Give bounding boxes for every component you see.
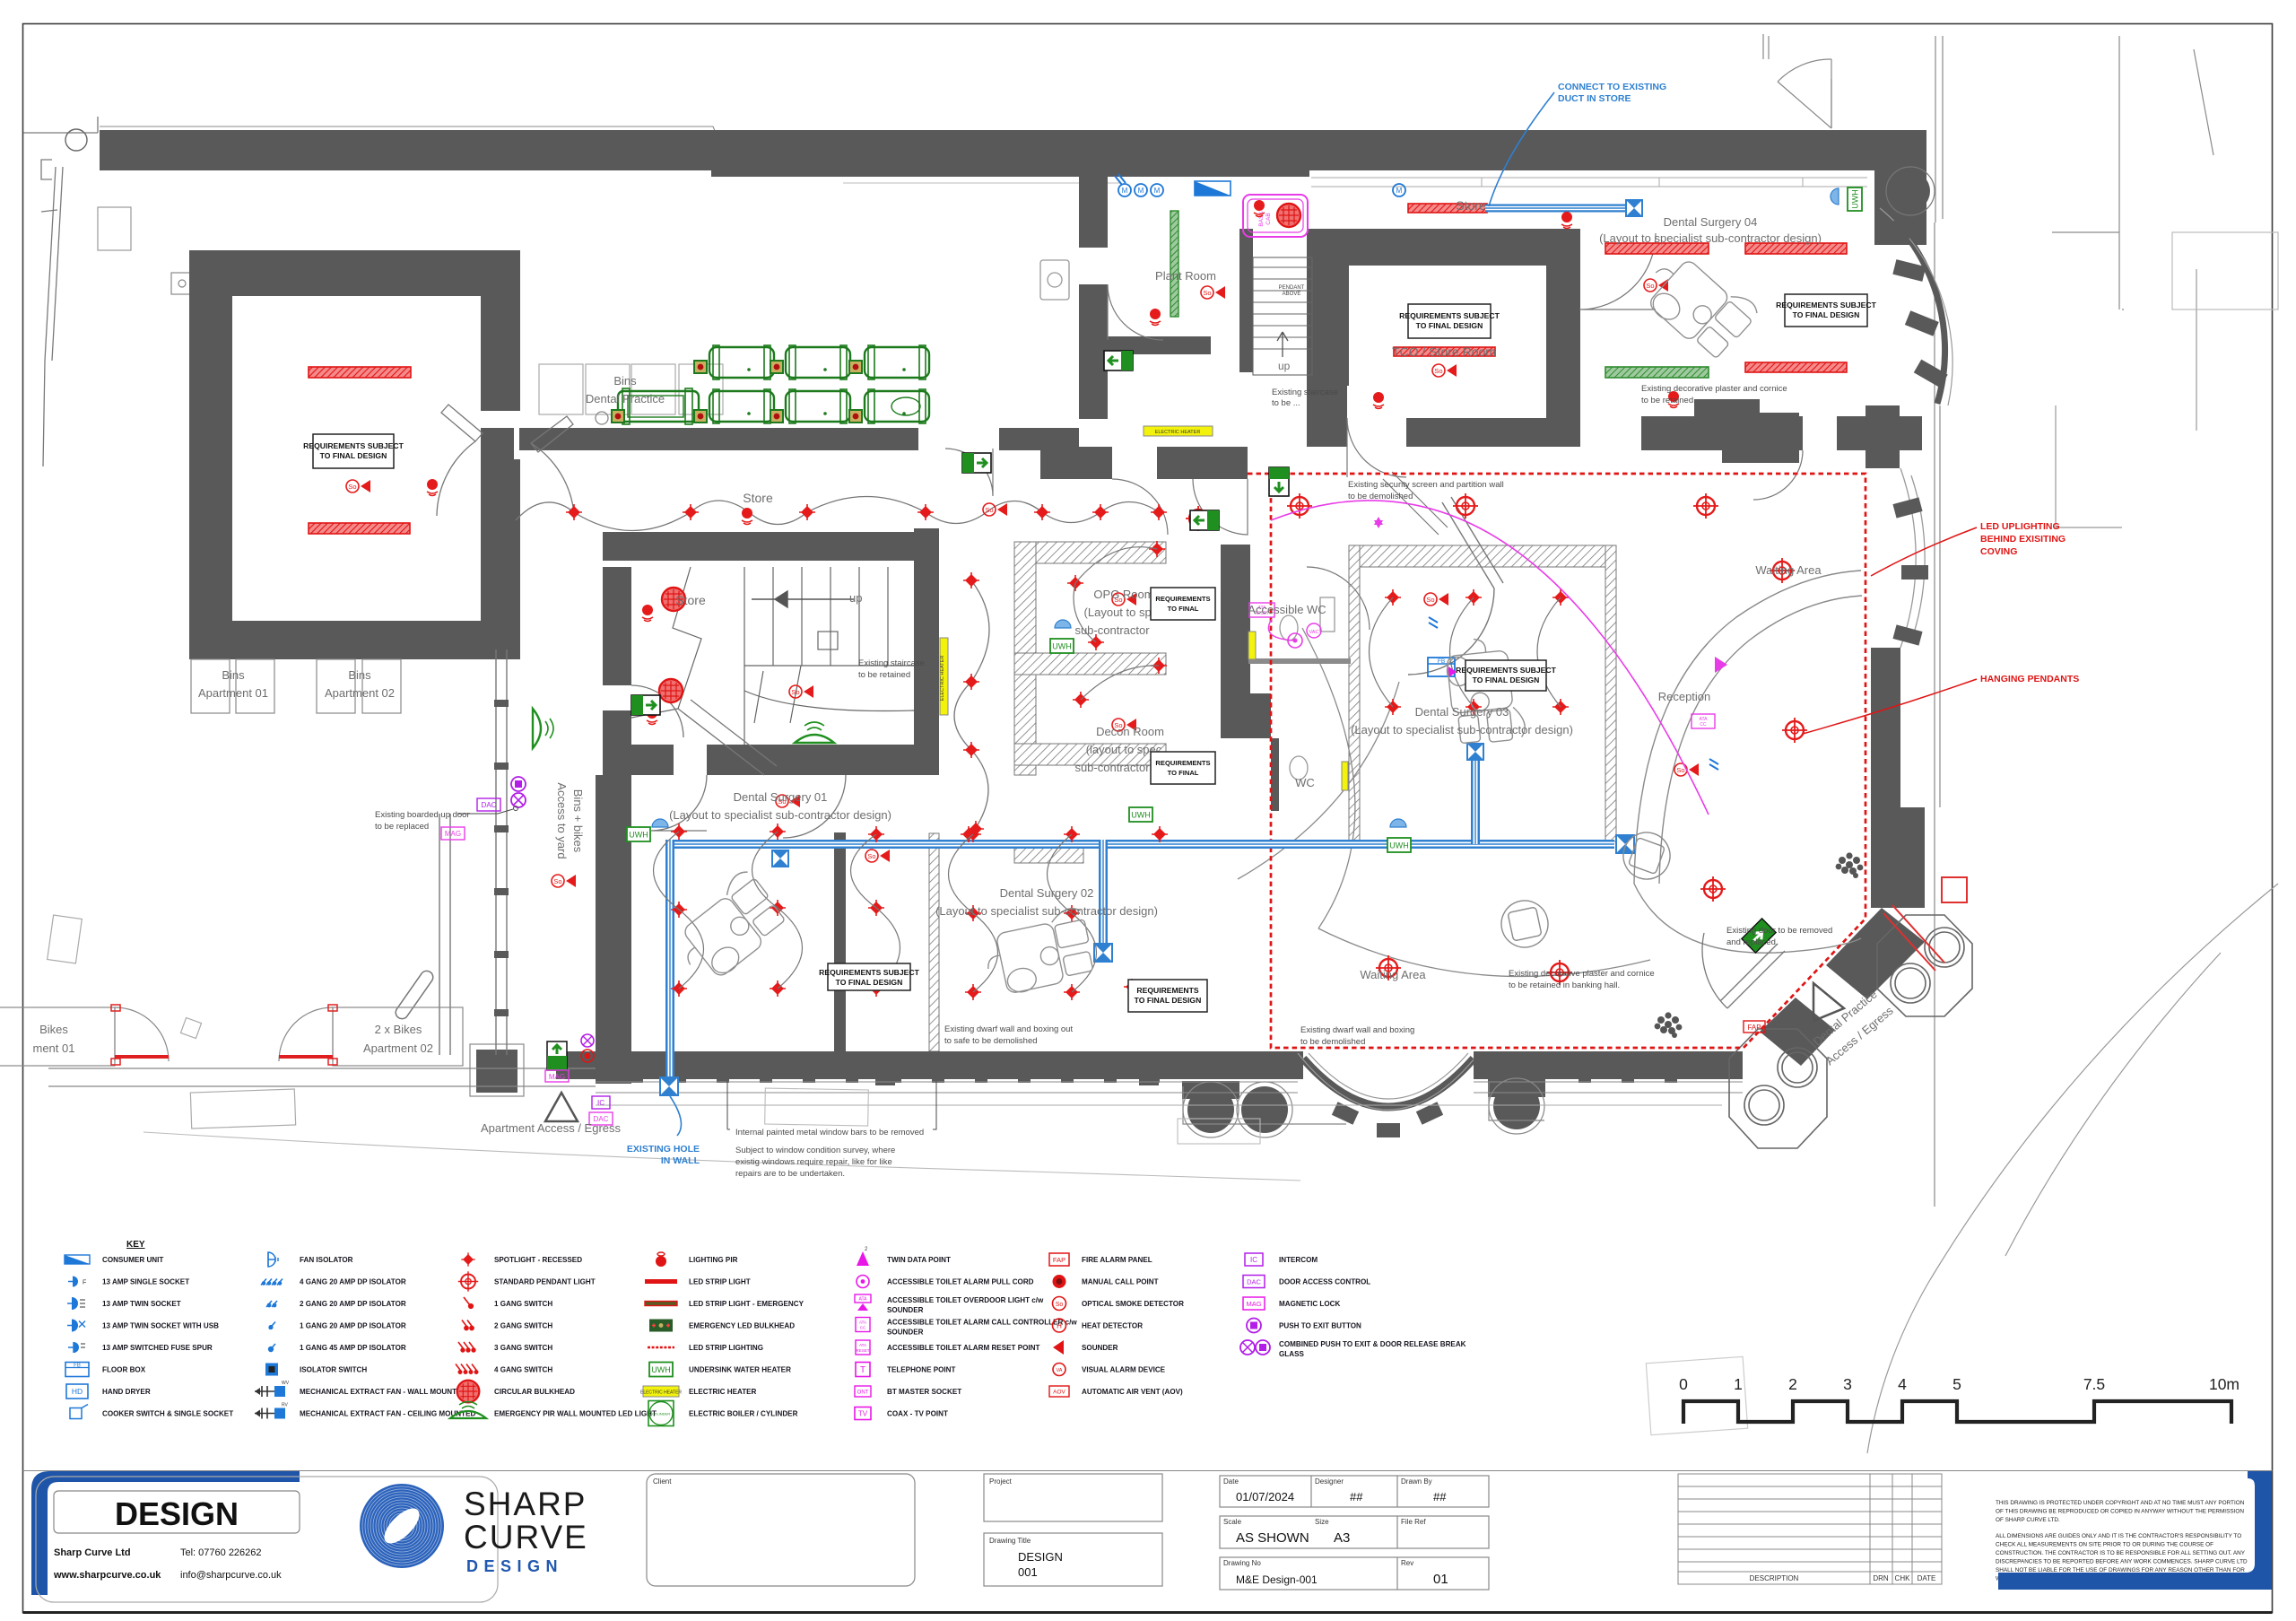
svg-text:(Layout to specialist sub-cont: (Layout to specialist sub-contractor des… bbox=[1351, 723, 1573, 736]
svg-text:Rev: Rev bbox=[1401, 1559, 1413, 1567]
svg-text:Existing dwarf wall and boxing: Existing dwarf wall and boxing out bbox=[944, 1024, 1073, 1034]
svg-text:Bins: Bins bbox=[222, 668, 245, 682]
svg-text:CC: CC bbox=[860, 1326, 866, 1330]
svg-text:Apartment 01: Apartment 01 bbox=[198, 686, 268, 700]
svg-text:RV: RV bbox=[282, 1403, 289, 1408]
svg-text:MANUAL CALL POINT: MANUAL CALL POINT bbox=[1082, 1278, 1159, 1286]
svg-text:Existing staircase: Existing staircase bbox=[858, 658, 925, 668]
svg-text:FIRE ALARM PANEL: FIRE ALARM PANEL bbox=[1082, 1256, 1152, 1264]
svg-text:TO FINAL DESIGN: TO FINAL DESIGN bbox=[1793, 310, 1860, 319]
svg-text:RESET: RESET bbox=[856, 1348, 869, 1353]
svg-text:OPTICAL SMOKE DETECTOR: OPTICAL SMOKE DETECTOR bbox=[1082, 1300, 1184, 1308]
svg-text:13 AMP SINGLE SOCKET: 13 AMP SINGLE SOCKET bbox=[102, 1278, 189, 1286]
svg-text:Dental Surgery 02: Dental Surgery 02 bbox=[1000, 886, 1094, 900]
svg-text:Bins: Bins bbox=[348, 668, 371, 682]
svg-text:Existing door to be removed: Existing door to be removed bbox=[1726, 926, 1832, 936]
svg-text:to be retained in banking hall: to be retained in banking hall. bbox=[1509, 980, 1620, 990]
svg-text:So: So bbox=[1056, 1302, 1064, 1308]
svg-text:CONNECT TO EXISTING: CONNECT TO EXISTING bbox=[1558, 82, 1666, 92]
svg-text:TO FINAL: TO FINAL bbox=[1168, 605, 1199, 613]
svg-text:Existing decorative plaster an: Existing decorative plaster and cornice bbox=[1641, 384, 1787, 394]
svg-text:ISOLATOR SWITCH: ISOLATOR SWITCH bbox=[300, 1366, 367, 1374]
svg-text:HEAT DETECTOR: HEAT DETECTOR bbox=[1082, 1322, 1143, 1330]
svg-text:REQUIREMENTS SUBJECT: REQUIREMENTS SUBJECT bbox=[1776, 301, 1876, 309]
svg-text:Apartment 02: Apartment 02 bbox=[325, 686, 395, 700]
svg-text:LED STRIP LIGHT: LED STRIP LIGHT bbox=[689, 1278, 751, 1286]
svg-text:MAGNETIC LOCK: MAGNETIC LOCK bbox=[1279, 1300, 1340, 1308]
svg-text:COMBINED PUSH TO EXIT & DOOR R: COMBINED PUSH TO EXIT & DOOR RELEASE BRE… bbox=[1279, 1340, 1466, 1348]
svg-text:001: 001 bbox=[1018, 1565, 1038, 1579]
svg-text:to be replaced: to be replaced bbox=[375, 822, 429, 832]
svg-text:DUCT IN STORE: DUCT IN STORE bbox=[1558, 93, 1631, 104]
svg-text:VAC: VAC bbox=[1309, 630, 1319, 635]
svg-text:KEY: KEY bbox=[126, 1240, 145, 1250]
svg-text:EXISTING HOLE: EXISTING HOLE bbox=[627, 1144, 700, 1155]
svg-text:REQUIREMENTS: REQUIREMENTS bbox=[1136, 986, 1199, 995]
svg-text:Client: Client bbox=[653, 1477, 672, 1486]
svg-text:Store: Store bbox=[675, 593, 706, 607]
svg-text:SOUNDER: SOUNDER bbox=[887, 1306, 924, 1314]
svg-text:MECHANICAL EXTRACT FAN - WALL: MECHANICAL EXTRACT FAN - WALL MOUNTED bbox=[300, 1388, 466, 1396]
svg-text:Internal painted metal window: Internal painted metal window bars to be… bbox=[735, 1128, 924, 1137]
svg-text:FLOOR BOX: FLOOR BOX bbox=[102, 1366, 146, 1374]
svg-text:ELECTRIC HEATER: ELECTRIC HEATER bbox=[640, 1390, 682, 1396]
svg-text:File Ref: File Ref bbox=[1401, 1518, 1426, 1526]
svg-text:Dental Surgery 03: Dental Surgery 03 bbox=[1415, 705, 1509, 719]
svg-text:F: F bbox=[83, 1280, 86, 1286]
svg-text:up: up bbox=[849, 591, 862, 605]
svg-text:Drawn By: Drawn By bbox=[1401, 1477, 1432, 1486]
svg-text:10m: 10m bbox=[2209, 1375, 2239, 1393]
svg-text:LED UPLIGHTING: LED UPLIGHTING bbox=[1980, 521, 2060, 532]
svg-text:(Layout to specialist sub-cont: (Layout to specialist sub-contractor des… bbox=[669, 808, 891, 822]
svg-text:IC: IC bbox=[597, 1099, 604, 1107]
svg-text:TV: TV bbox=[858, 1410, 868, 1418]
svg-text:ONT: ONT bbox=[857, 1390, 869, 1396]
svg-text:EMERGENCY LED BULKHEAD: EMERGENCY LED BULKHEAD bbox=[689, 1322, 795, 1330]
svg-text:OF THIS DRAWING BE REPRODUCED: OF THIS DRAWING BE REPRODUCED OR COPIED … bbox=[1996, 1509, 2244, 1515]
svg-text:VA: VA bbox=[1057, 1368, 1063, 1373]
svg-text:1 GANG 20 AMP DP ISOLATOR: 1 GANG 20 AMP DP ISOLATOR bbox=[300, 1322, 406, 1330]
svg-text:CONSUMER UNIT: CONSUMER UNIT bbox=[102, 1256, 163, 1264]
svg-text:SHARP: SHARP bbox=[464, 1486, 587, 1522]
svg-text:TCO / Store Room: TCO / Store Room bbox=[1392, 344, 1496, 359]
svg-text:CHECK ALL MEASUREMENTS ON SITE: CHECK ALL MEASUREMENTS ON SITE PRIOR TO … bbox=[1996, 1542, 2213, 1548]
svg-text:WV: WV bbox=[282, 1381, 290, 1386]
svg-text:Existing dwarf wall and boxing: Existing dwarf wall and boxing bbox=[1300, 1025, 1414, 1035]
svg-text:DAC: DAC bbox=[482, 801, 497, 809]
svg-text:Size: Size bbox=[1315, 1518, 1329, 1526]
svg-text:1 GANG 45 AMP DP ISOLATOR: 1 GANG 45 AMP DP ISOLATOR bbox=[300, 1344, 406, 1352]
svg-text:INTERCOM: INTERCOM bbox=[1279, 1256, 1318, 1264]
svg-text:TO FINAL DESIGN: TO FINAL DESIGN bbox=[836, 978, 903, 987]
svg-text:OF SHARP CURVE LTD.: OF SHARP CURVE LTD. bbox=[1996, 1517, 2060, 1523]
svg-text:T: T bbox=[860, 1365, 865, 1375]
svg-text:13 AMP TWIN SOCKET WITH USB: 13 AMP TWIN SOCKET WITH USB bbox=[102, 1322, 219, 1330]
svg-text:ABOVE: ABOVE bbox=[1283, 292, 1301, 297]
svg-text:THIS DRAWING IS PROTECTED UNDE: THIS DRAWING IS PROTECTED UNDER COPYRIGH… bbox=[1996, 1500, 2245, 1506]
svg-text:PUSH TO EXIT BUTTON: PUSH TO EXIT BUTTON bbox=[1279, 1322, 1361, 1330]
svg-text:TELEPHONE POINT: TELEPHONE POINT bbox=[887, 1366, 956, 1374]
svg-text:GLASS: GLASS bbox=[1279, 1350, 1304, 1358]
svg-text:LED STRIP LIGHT - EMERGENCY: LED STRIP LIGHT - EMERGENCY bbox=[689, 1300, 804, 1308]
svg-text:2: 2 bbox=[1788, 1375, 1797, 1393]
svg-text:13 AMP SWITCHED FUSE SPUR: 13 AMP SWITCHED FUSE SPUR bbox=[102, 1344, 213, 1352]
svg-text:IN WALL: IN WALL bbox=[661, 1155, 700, 1166]
svg-text:Subject to window condition su: Subject to window condition survey, wher… bbox=[735, 1146, 895, 1155]
svg-text:up: up bbox=[1278, 360, 1291, 372]
svg-text:TO FINAL DESIGN: TO FINAL DESIGN bbox=[320, 451, 387, 460]
svg-text:ATA: ATA bbox=[859, 1343, 866, 1347]
svg-text:PENDANT: PENDANT bbox=[1279, 285, 1305, 291]
svg-text:Existing decorative plaster an: Existing decorative plaster and cornice bbox=[1509, 969, 1655, 979]
svg-text:info@sharpcurve.co.uk: info@sharpcurve.co.uk bbox=[180, 1570, 282, 1581]
svg-text:(Layout to specialist sub-cont: (Layout to specialist sub-contractor des… bbox=[1599, 231, 1822, 245]
svg-text:repairs are to be undertaken.: repairs are to be undertaken. bbox=[735, 1169, 845, 1179]
svg-text:CC: CC bbox=[1700, 722, 1707, 728]
svg-text:COAX - TV POINT: COAX - TV POINT bbox=[887, 1410, 948, 1418]
svg-text:WC: WC bbox=[1295, 776, 1315, 789]
svg-text:01: 01 bbox=[1433, 1572, 1448, 1587]
svg-text:Bins: Bins bbox=[613, 374, 637, 388]
svg-text:HD: HD bbox=[72, 1387, 83, 1396]
svg-text:Designer: Designer bbox=[1315, 1477, 1344, 1486]
svg-text:BT MASTER SOCKET: BT MASTER SOCKET bbox=[887, 1388, 961, 1396]
svg-text:7.5: 7.5 bbox=[2083, 1375, 2105, 1393]
svg-text:BEHIND EXISITING: BEHIND EXISITING bbox=[1980, 534, 2066, 545]
svg-text:ATA: ATA bbox=[859, 1320, 866, 1325]
svg-text:HAND DRYER: HAND DRYER bbox=[102, 1388, 151, 1396]
svg-text:3: 3 bbox=[1843, 1375, 1852, 1393]
svg-text:Reception: Reception bbox=[1658, 690, 1711, 703]
svg-text:SOUNDER: SOUNDER bbox=[887, 1329, 924, 1337]
svg-text:DESCRIPTION: DESCRIPTION bbox=[1750, 1574, 1799, 1582]
svg-text:Project: Project bbox=[989, 1477, 1013, 1486]
svg-text:existig windows require repair: existig windows require repair, like for… bbox=[735, 1157, 892, 1167]
svg-text:TO FINAL DESIGN: TO FINAL DESIGN bbox=[1473, 675, 1540, 684]
svg-text:H: H bbox=[1057, 1322, 1062, 1330]
svg-text:2 GANG 20 AMP DP ISOLATOR: 2 GANG 20 AMP DP ISOLATOR bbox=[300, 1300, 406, 1308]
svg-text:4: 4 bbox=[1898, 1375, 1907, 1393]
svg-text:Apartment Access / Egress: Apartment Access / Egress bbox=[481, 1121, 622, 1135]
svg-text:REQUIREMENTS SUBJECT: REQUIREMENTS SUBJECT bbox=[303, 441, 404, 450]
svg-text:ACCESSIBLE TOILET OVERDOOR LIG: ACCESSIBLE TOILET OVERDOOR LIGHT c/w bbox=[887, 1296, 1044, 1304]
svg-text:Access to yard: Access to yard bbox=[555, 782, 569, 858]
svg-text:2 GANG SWITCH: 2 GANG SWITCH bbox=[494, 1322, 552, 1330]
svg-text:IC: IC bbox=[1250, 1256, 1257, 1264]
svg-text:EMERGENCY PIR WALL MOUNTED LED: EMERGENCY PIR WALL MOUNTED LED LIGHT bbox=[494, 1410, 657, 1418]
svg-text:AS SHOWN: AS SHOWN bbox=[1236, 1530, 1309, 1546]
svg-text:DISCREPANCIES TO BE REPORTED B: DISCREPANCIES TO BE REPORTED BEFORE ANY … bbox=[1996, 1559, 2248, 1565]
svg-text:1 GANG SWITCH: 1 GANG SWITCH bbox=[494, 1300, 552, 1308]
svg-text:TWIN DATA POINT: TWIN DATA POINT bbox=[887, 1256, 951, 1264]
svg-text:CYLINDER: CYLINDER bbox=[652, 1412, 670, 1416]
svg-text:sub-contractor: sub-contractor bbox=[1074, 623, 1150, 637]
svg-text:Apartment 02: Apartment 02 bbox=[363, 1041, 433, 1055]
svg-text:ATA: ATA bbox=[859, 1297, 868, 1303]
svg-text:ELECTRIC BOILER / CYLINDER: ELECTRIC BOILER / CYLINDER bbox=[689, 1410, 798, 1418]
svg-text:DESIGN: DESIGN bbox=[466, 1557, 563, 1575]
svg-text:DATE: DATE bbox=[1918, 1574, 1936, 1582]
svg-text:CHK: CHK bbox=[1895, 1574, 1911, 1582]
svg-text:##: ## bbox=[1433, 1490, 1447, 1503]
svg-text:Sharp Curve Ltd: Sharp Curve Ltd bbox=[54, 1547, 131, 1558]
svg-text:M&E Design-001: M&E Design-001 bbox=[1236, 1573, 1318, 1586]
svg-text:Dental Surgery 01: Dental Surgery 01 bbox=[734, 790, 828, 804]
svg-text:TO FINAL DESIGN: TO FINAL DESIGN bbox=[1135, 996, 1202, 1005]
svg-text:to be ...: to be ... bbox=[1272, 398, 1300, 408]
svg-text:SPOTLIGHT - RECESSED: SPOTLIGHT - RECESSED bbox=[494, 1256, 582, 1264]
svg-text:##: ## bbox=[1350, 1490, 1363, 1503]
svg-text:MAG: MAG bbox=[445, 830, 461, 838]
svg-text:CAB: CAB bbox=[1265, 213, 1272, 224]
svg-text:MECHANICAL EXTRACT FAN - CEILI: MECHANICAL EXTRACT FAN - CEILING MOUNTED bbox=[300, 1410, 475, 1418]
svg-text:LED STRIP LIGHTING: LED STRIP LIGHTING bbox=[689, 1344, 763, 1352]
svg-text:01/07/2024: 01/07/2024 bbox=[1236, 1490, 1294, 1503]
svg-text:and replaced.: and replaced. bbox=[1726, 937, 1779, 947]
svg-text:Existing security screen and p: Existing security screen and partition w… bbox=[1348, 480, 1504, 490]
svg-text:HANGING PENDANTS: HANGING PENDANTS bbox=[1980, 674, 2079, 684]
svg-text:Drawing Title: Drawing Title bbox=[989, 1537, 1031, 1545]
svg-text:TO FINAL: TO FINAL bbox=[1168, 769, 1199, 777]
svg-text:FAP: FAP bbox=[1053, 1256, 1065, 1264]
svg-text:FAP: FAP bbox=[1747, 1024, 1761, 1032]
svg-text:4 GANG 20 AMP DP ISOLATOR: 4 GANG 20 AMP DP ISOLATOR bbox=[300, 1278, 406, 1286]
svg-text:REQUIREMENTS: REQUIREMENTS bbox=[1155, 759, 1210, 767]
svg-text:Dental Surgery 04: Dental Surgery 04 bbox=[1664, 215, 1758, 229]
svg-text:DESIGN: DESIGN bbox=[1018, 1550, 1063, 1564]
svg-text:OPG Room: OPG Room bbox=[1093, 588, 1153, 601]
svg-text:(Layout to specialist sub-cont: (Layout to specialist sub-contractor des… bbox=[935, 904, 1158, 918]
svg-text:Accessible WC: Accessible WC bbox=[1248, 603, 1326, 616]
svg-text:Plant Room: Plant Room bbox=[1155, 269, 1216, 283]
svg-text:REQUIREMENTS SUBJECT: REQUIREMENTS SUBJECT bbox=[819, 968, 919, 977]
svg-text:FAN ISOLATOR: FAN ISOLATOR bbox=[300, 1256, 353, 1264]
svg-text:DRN: DRN bbox=[1873, 1574, 1889, 1582]
svg-text:STANDARD PENDANT LIGHT: STANDARD PENDANT LIGHT bbox=[494, 1278, 596, 1286]
svg-text:REQUIREMENTS SUBJECT: REQUIREMENTS SUBJECT bbox=[1399, 311, 1500, 320]
svg-text:Store: Store bbox=[1456, 198, 1486, 213]
svg-text:Waiting Area: Waiting Area bbox=[1360, 968, 1426, 981]
svg-text:AOV: AOV bbox=[1053, 1390, 1065, 1396]
svg-text:MAG: MAG bbox=[549, 1073, 565, 1081]
svg-text:CONSTRUCTION. THE CONTRACTOR I: CONSTRUCTION. THE CONTRACTOR IS TO BE RE… bbox=[1996, 1550, 2246, 1556]
svg-text:to be retained.: to be retained. bbox=[1641, 396, 1696, 405]
svg-text:Existing staircase: Existing staircase bbox=[1272, 388, 1338, 397]
svg-text:ACCESSIBLE TOILET ALARM RESET: ACCESSIBLE TOILET ALARM RESET POINT bbox=[887, 1344, 1039, 1352]
svg-text:ELECTRIC HEATER: ELECTRIC HEATER bbox=[940, 656, 945, 702]
svg-text:DESIGN: DESIGN bbox=[115, 1495, 239, 1532]
svg-text:ALL DIMENSIONS ARE GUIDES ONLY: ALL DIMENSIONS ARE GUIDES ONLY AND IT IS… bbox=[1996, 1533, 2241, 1539]
svg-text:REQUIREMENTS SUBJECT: REQUIREMENTS SUBJECT bbox=[1456, 666, 1556, 675]
svg-text:CIRCULAR BULKHEAD: CIRCULAR BULKHEAD bbox=[494, 1388, 575, 1396]
svg-text:to be demolished: to be demolished bbox=[1300, 1037, 1365, 1047]
svg-text:Store: Store bbox=[743, 491, 773, 505]
svg-text:www.sharpcurve.co.uk: www.sharpcurve.co.uk bbox=[53, 1570, 161, 1581]
svg-text:MAG: MAG bbox=[1246, 1300, 1261, 1308]
svg-text:Waiting Area: Waiting Area bbox=[1755, 563, 1822, 577]
svg-text:sub-contractor: sub-contractor bbox=[1074, 761, 1150, 774]
svg-text:2 x Bikes: 2 x Bikes bbox=[375, 1023, 422, 1036]
svg-text:SHALL NOT BE LIABLE FOR THE US: SHALL NOT BE LIABLE FOR THE USE OF DRAWI… bbox=[1996, 1567, 2245, 1573]
svg-text:5: 5 bbox=[1952, 1375, 1961, 1393]
svg-text:AUTOMATIC AIR VENT (AOV): AUTOMATIC AIR VENT (AOV) bbox=[1082, 1388, 1183, 1396]
svg-text:Drawing No: Drawing No bbox=[1223, 1559, 1261, 1567]
svg-text:Scale: Scale bbox=[1223, 1518, 1242, 1526]
svg-text:COOKER SWITCH & SINGLE SOCKET: COOKER SWITCH & SINGLE SOCKET bbox=[102, 1410, 233, 1418]
svg-text:VISUAL ALARM DEVICE: VISUAL ALARM DEVICE bbox=[1082, 1366, 1166, 1374]
svg-text:FB: FB bbox=[74, 1364, 81, 1369]
svg-text:3 GANG SWITCH: 3 GANG SWITCH bbox=[494, 1344, 552, 1352]
svg-text:COVING: COVING bbox=[1980, 546, 2017, 557]
svg-text:DAC: DAC bbox=[1247, 1278, 1261, 1286]
svg-text:to safe to be demolished: to safe to be demolished bbox=[944, 1036, 1038, 1046]
svg-text:A3: A3 bbox=[1334, 1530, 1350, 1546]
svg-text:ACCESSIBLE TOILET ALARM PULL C: ACCESSIBLE TOILET ALARM PULL CORD bbox=[887, 1278, 1034, 1286]
svg-text:ACCESSIBLE TOILET ALARM CALL C: ACCESSIBLE TOILET ALARM CALL CONTROLLER … bbox=[887, 1319, 1077, 1327]
svg-text:ELECTRIC HEATER: ELECTRIC HEATER bbox=[1155, 430, 1201, 435]
svg-text:ELECTRIC HEATER: ELECTRIC HEATER bbox=[689, 1388, 757, 1396]
svg-text:CURVE: CURVE bbox=[464, 1519, 588, 1556]
svg-text:Bikes: Bikes bbox=[39, 1023, 68, 1036]
svg-text:DOOR ACCESS CONTROL: DOOR ACCESS CONTROL bbox=[1279, 1278, 1370, 1286]
svg-text:LIGHTING PIR: LIGHTING PIR bbox=[689, 1256, 738, 1264]
svg-text:Date: Date bbox=[1223, 1477, 1239, 1486]
svg-text:to be retained: to be retained bbox=[858, 670, 910, 680]
svg-text:Dental Practice: Dental Practice bbox=[586, 392, 665, 405]
svg-text:to be demolished: to be demolished bbox=[1348, 492, 1413, 501]
svg-text:4 GANG SWITCH: 4 GANG SWITCH bbox=[494, 1366, 552, 1374]
svg-text:13 AMP TWIN SOCKET: 13 AMP TWIN SOCKET bbox=[102, 1300, 181, 1308]
svg-text:Existing boarded up door: Existing boarded up door bbox=[375, 810, 470, 820]
svg-text:Decon Room: Decon Room bbox=[1096, 725, 1164, 738]
svg-text:REQUIREMENTS: REQUIREMENTS bbox=[1155, 595, 1210, 603]
svg-text:0: 0 bbox=[1679, 1375, 1688, 1393]
svg-text:SOUNDER: SOUNDER bbox=[1082, 1344, 1118, 1352]
svg-text:TO FINAL DESIGN: TO FINAL DESIGN bbox=[1416, 321, 1483, 330]
svg-text:Bins + bikes: Bins + bikes bbox=[571, 789, 585, 853]
svg-text:UNDERSINK WATER HEATER: UNDERSINK WATER HEATER bbox=[689, 1366, 791, 1374]
svg-text:FB: FB bbox=[1438, 658, 1445, 665]
svg-text:1: 1 bbox=[1734, 1375, 1743, 1393]
svg-text:ment 01: ment 01 bbox=[33, 1041, 75, 1055]
svg-text:Tel: 07760 226262: Tel: 07760 226262 bbox=[180, 1547, 262, 1558]
